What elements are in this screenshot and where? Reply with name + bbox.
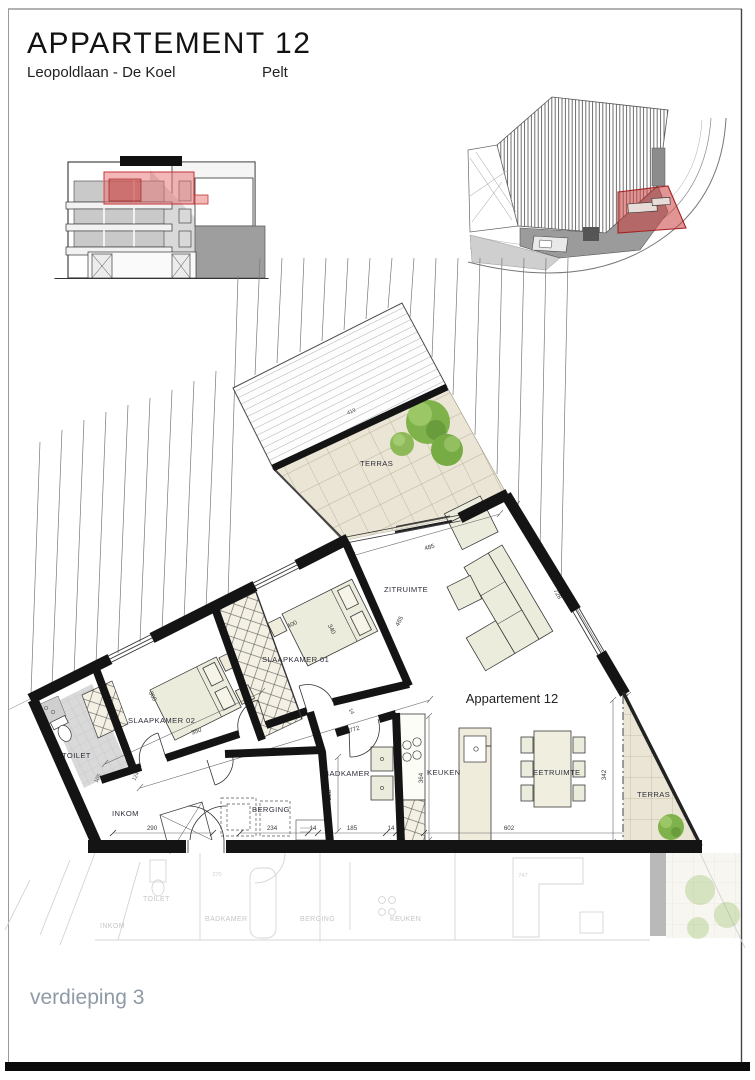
dim-terras-right-depth: 342 — [601, 769, 608, 780]
ghost-label-badkamer: BADKAMER — [205, 916, 248, 923]
dim-wall-a: 14 — [310, 825, 317, 832]
ghost-label-inkom: INKOM — [100, 923, 125, 930]
page-title: APPARTEMENT 12 — [27, 27, 311, 60]
dim-berging-width: 234 — [267, 825, 278, 832]
site-plan-inset — [468, 97, 726, 273]
dim-eetruimte-width: 602 — [504, 825, 515, 832]
entry-door-gap — [186, 840, 226, 853]
ghost-labels: INKOM TOILET BADKAMER BERGING KEUKEN 270… — [100, 872, 528, 930]
terras-right: TERRAS — [623, 692, 701, 846]
room-label-badkamer: BADKAMER — [324, 769, 370, 778]
dim-wall-b: 14 — [388, 825, 395, 832]
elevation-roof — [120, 156, 182, 166]
ghost-label-toilet: TOILET — [143, 896, 170, 903]
ghost-dim-a: 270 — [212, 872, 221, 878]
dim-keuken-depth: 364 — [418, 772, 425, 783]
room-label-slaapkamer02: SLAAPKAMER 02 — [128, 716, 195, 725]
elevation-unit-highlight — [104, 172, 208, 204]
floor-label: verdieping 3 — [30, 986, 144, 1009]
dim-inkom-width: 290 — [147, 825, 158, 832]
room-label-eetruimte: EETRUIMTE — [533, 768, 580, 777]
room-label-terras-right: TERRAS — [637, 790, 670, 799]
room-label-inkom: INKOM — [112, 809, 139, 818]
bottom-wall — [88, 840, 702, 853]
site-unit-highlight — [618, 186, 686, 233]
room-label-berging: BERGING — [252, 805, 290, 814]
subtitle-street: Leopoldlaan - De Koel — [27, 64, 175, 81]
room-label-toilet: TOILET — [62, 751, 91, 760]
elevation-inset — [55, 156, 268, 279]
room-label-slaapkamer01: SLAAPKAMER 01 — [262, 655, 329, 664]
ghost-label-berging: BERGING — [300, 916, 335, 923]
apartment-label: Appartement 12 — [466, 691, 559, 706]
room-label-zitruimte: ZITRUIMTE — [384, 585, 428, 594]
plan-canvas: APPARTEMENT 12 Leopoldlaan - De Koel Pel… — [0, 0, 755, 1080]
kitchen-island — [459, 728, 491, 843]
room-label-terras-top: TERRAS — [360, 459, 393, 468]
subtitle-city: Pelt — [262, 64, 289, 81]
sheet-bottom-bar — [5, 1062, 750, 1071]
ghost-label-keuken: KEUKEN — [390, 916, 421, 923]
garage-door — [172, 254, 190, 278]
apartment-floor — [30, 493, 700, 846]
ghost-dim-b: 747 — [518, 873, 527, 879]
room-label-keuken: KEUKEN — [427, 768, 461, 777]
drawing-sheet: APPARTEMENT 12 Leopoldlaan - De Koel Pel… — [0, 0, 755, 1080]
ghost-floor-plan — [5, 853, 745, 948]
title-block: APPARTEMENT 12 Leopoldlaan - De Koel Pel… — [27, 27, 311, 81]
garage-door — [92, 254, 112, 278]
dim-badkamer-width: 185 — [347, 825, 358, 832]
